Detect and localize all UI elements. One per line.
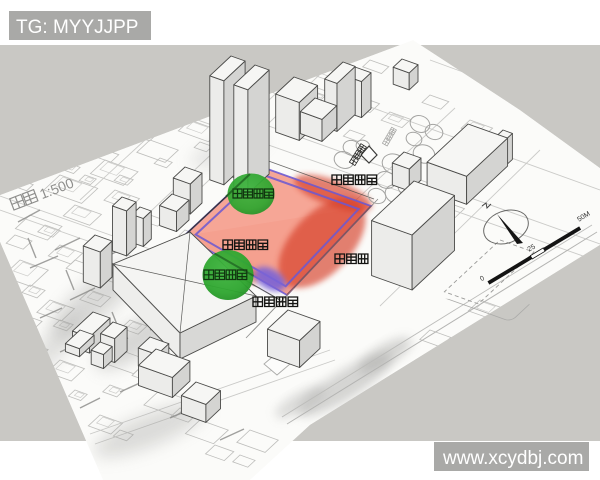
svg-text:TG: MYYJJPP: TG: MYYJJPP xyxy=(16,17,138,38)
svg-text:www.xcydbj.com: www.xcydbj.com xyxy=(442,448,583,469)
